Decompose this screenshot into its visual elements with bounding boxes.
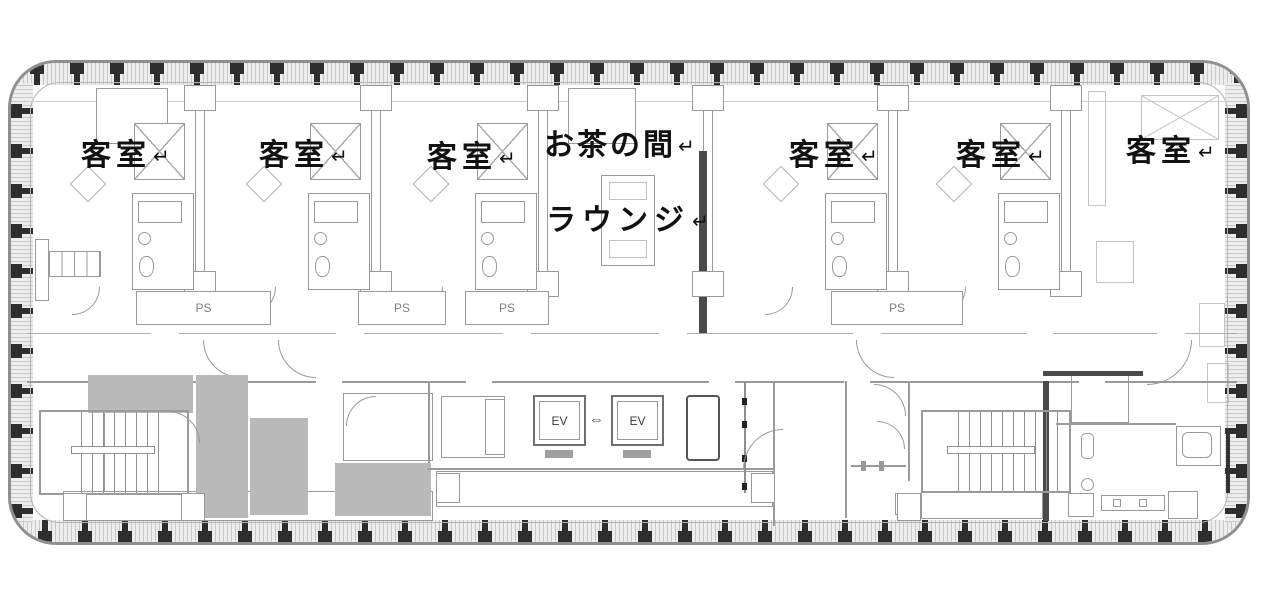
door-arc — [203, 340, 241, 378]
door-arc — [874, 384, 906, 416]
facade-band-bottom — [11, 520, 1247, 542]
bidet — [1081, 478, 1094, 491]
hinge-dot — [742, 483, 747, 490]
wall-dark — [699, 151, 707, 333]
table — [1096, 241, 1134, 283]
column — [692, 85, 724, 111]
elevator-sill — [623, 450, 651, 458]
column — [692, 271, 724, 297]
door-opening — [316, 380, 342, 384]
bathtub — [1004, 201, 1048, 223]
room-label-lounge: ラウンジ↵ — [546, 204, 709, 237]
room-label-guest-1: 客室↵ — [81, 139, 170, 172]
column — [1050, 85, 1082, 111]
elevator-sill — [545, 450, 573, 458]
return-arrow-icon: ↵ — [153, 146, 170, 168]
toilet — [832, 256, 847, 277]
ev-label: EV — [629, 414, 645, 428]
toilet — [1005, 256, 1020, 277]
tea-table-seat — [609, 182, 647, 200]
gray-shaft — [88, 375, 193, 413]
column — [877, 85, 909, 111]
door-opening — [844, 380, 870, 384]
bathtub — [314, 201, 358, 223]
room-label-tea-room: お茶の間↵ — [544, 129, 695, 162]
column — [360, 85, 392, 111]
door-opening — [1026, 332, 1054, 335]
room-label-guest-5: 客室↵ — [956, 139, 1045, 172]
floor-plan: PS PS PS PS — [8, 60, 1250, 545]
door-opening — [1157, 332, 1185, 335]
elevator-shaft: EV — [611, 395, 664, 446]
pipe-shaft-box: PS — [465, 291, 549, 325]
room-label-guest-2: 客室↵ — [259, 139, 348, 172]
room-label-text: 客室 — [427, 141, 497, 174]
ps-label: PS — [394, 301, 410, 315]
closet — [1088, 91, 1106, 206]
closet — [35, 239, 49, 301]
bathroom-unit — [475, 193, 537, 290]
ps-label: PS — [889, 301, 905, 315]
hinge-dot — [742, 398, 747, 405]
room-label-guest-4: 客室↵ — [789, 139, 878, 172]
wall-partition — [195, 109, 205, 273]
return-arrow-icon: ↵ — [861, 146, 878, 168]
bathtub — [1182, 432, 1212, 458]
door-opening — [659, 332, 687, 335]
wall — [428, 468, 775, 470]
door-arc — [877, 421, 905, 449]
room-label-text: 客室 — [956, 139, 1026, 172]
column — [181, 493, 205, 521]
elevator-car: EV — [617, 401, 658, 440]
facade-band-left — [11, 83, 33, 522]
hanger — [861, 461, 866, 471]
basin — [138, 232, 151, 245]
door-arc — [765, 287, 793, 315]
bed — [1141, 95, 1219, 140]
basin — [481, 232, 494, 245]
luggage-bench — [49, 251, 101, 277]
toilet — [1081, 433, 1094, 459]
door-arc — [278, 340, 316, 378]
room-label-guest-6: 客室↵ — [1126, 135, 1215, 168]
wall — [908, 381, 910, 481]
toilet — [139, 256, 154, 277]
bathroom-unit — [308, 193, 370, 290]
sink — [1139, 499, 1147, 507]
sink — [1113, 499, 1121, 507]
column — [751, 473, 775, 503]
hinge-dot — [742, 421, 747, 428]
return-arrow-icon: ↵ — [1198, 142, 1215, 164]
corridor-wall-upper — [27, 333, 1237, 334]
column — [436, 473, 460, 503]
service-corridor — [436, 471, 773, 507]
elevator-car: EV — [539, 401, 580, 440]
stair-rail — [71, 446, 155, 454]
wall-partition — [371, 109, 381, 273]
stair-rail — [947, 446, 1035, 454]
door-arc — [72, 287, 100, 315]
room-label-guest-3: 客室↵ — [427, 141, 516, 174]
basin — [314, 232, 327, 245]
duct — [485, 399, 505, 455]
wall — [1056, 423, 1176, 425]
tea-table-seat — [609, 240, 647, 258]
wall-partition — [1061, 109, 1071, 273]
column — [527, 85, 559, 111]
vanity-counter — [1101, 495, 1165, 511]
door-opening — [336, 332, 364, 335]
column — [1168, 491, 1198, 519]
column — [63, 493, 87, 521]
elevator-shaft: EV — [533, 395, 586, 446]
cabinet — [1207, 363, 1229, 403]
wall — [845, 381, 847, 518]
ev-label: EV — [551, 414, 567, 428]
hanger — [879, 461, 884, 471]
door-arc — [1147, 340, 1192, 385]
bathroom-unit — [998, 193, 1060, 290]
bathtub — [481, 201, 525, 223]
room-label-text: 客室 — [81, 139, 151, 172]
door-opening — [151, 332, 179, 335]
return-arrow-icon: ↵ — [692, 211, 709, 233]
toilet — [482, 256, 497, 277]
column — [1068, 493, 1094, 517]
room-label-text: お茶の間 — [544, 129, 676, 162]
ps-label: PS — [195, 301, 211, 315]
bathtub — [831, 201, 875, 223]
bathroom-unit — [825, 193, 887, 290]
toilet — [315, 256, 330, 277]
column — [897, 493, 921, 521]
page: { "plan": { "labels": { "guest_room": "客… — [0, 0, 1280, 600]
wall-dark — [1043, 371, 1143, 376]
bathroom-unit — [132, 193, 194, 290]
cabinet — [1199, 303, 1225, 347]
door-opening — [466, 380, 492, 384]
door-arc — [743, 429, 783, 469]
gray-shaft — [335, 463, 431, 516]
door-opening — [503, 332, 531, 335]
wall-partition — [888, 109, 898, 273]
pipe-shaft-box: PS — [831, 291, 963, 325]
return-arrow-icon: ↵ — [331, 146, 348, 168]
pipe-shaft-box: PS — [136, 291, 271, 325]
pipe-shaft-box: PS — [358, 291, 446, 325]
return-arrow-icon: ↵ — [1028, 146, 1045, 168]
service-corridor — [921, 491, 1043, 519]
room-label-text: 客室 — [789, 139, 859, 172]
basin — [831, 232, 844, 245]
column — [184, 85, 216, 111]
elevator-door-arrows-icon: ⇔ — [589, 411, 604, 428]
door-opening — [709, 380, 735, 384]
facade-band-top — [11, 63, 1247, 85]
return-arrow-icon: ↵ — [678, 136, 695, 158]
door-opening — [1079, 380, 1105, 384]
return-arrow-icon: ↵ — [499, 148, 516, 170]
room-label-text: ラウンジ — [546, 204, 690, 237]
bathtub — [138, 201, 182, 223]
ps-label: PS — [499, 301, 515, 315]
room-label-text: 客室 — [1126, 135, 1196, 168]
service-shaft — [686, 395, 720, 461]
gray-shaft — [250, 418, 308, 515]
basin — [1004, 232, 1017, 245]
wall-dark — [1226, 428, 1230, 493]
room-label-text: 客室 — [259, 139, 329, 172]
door-opening — [853, 332, 881, 335]
door-arc — [856, 340, 894, 378]
